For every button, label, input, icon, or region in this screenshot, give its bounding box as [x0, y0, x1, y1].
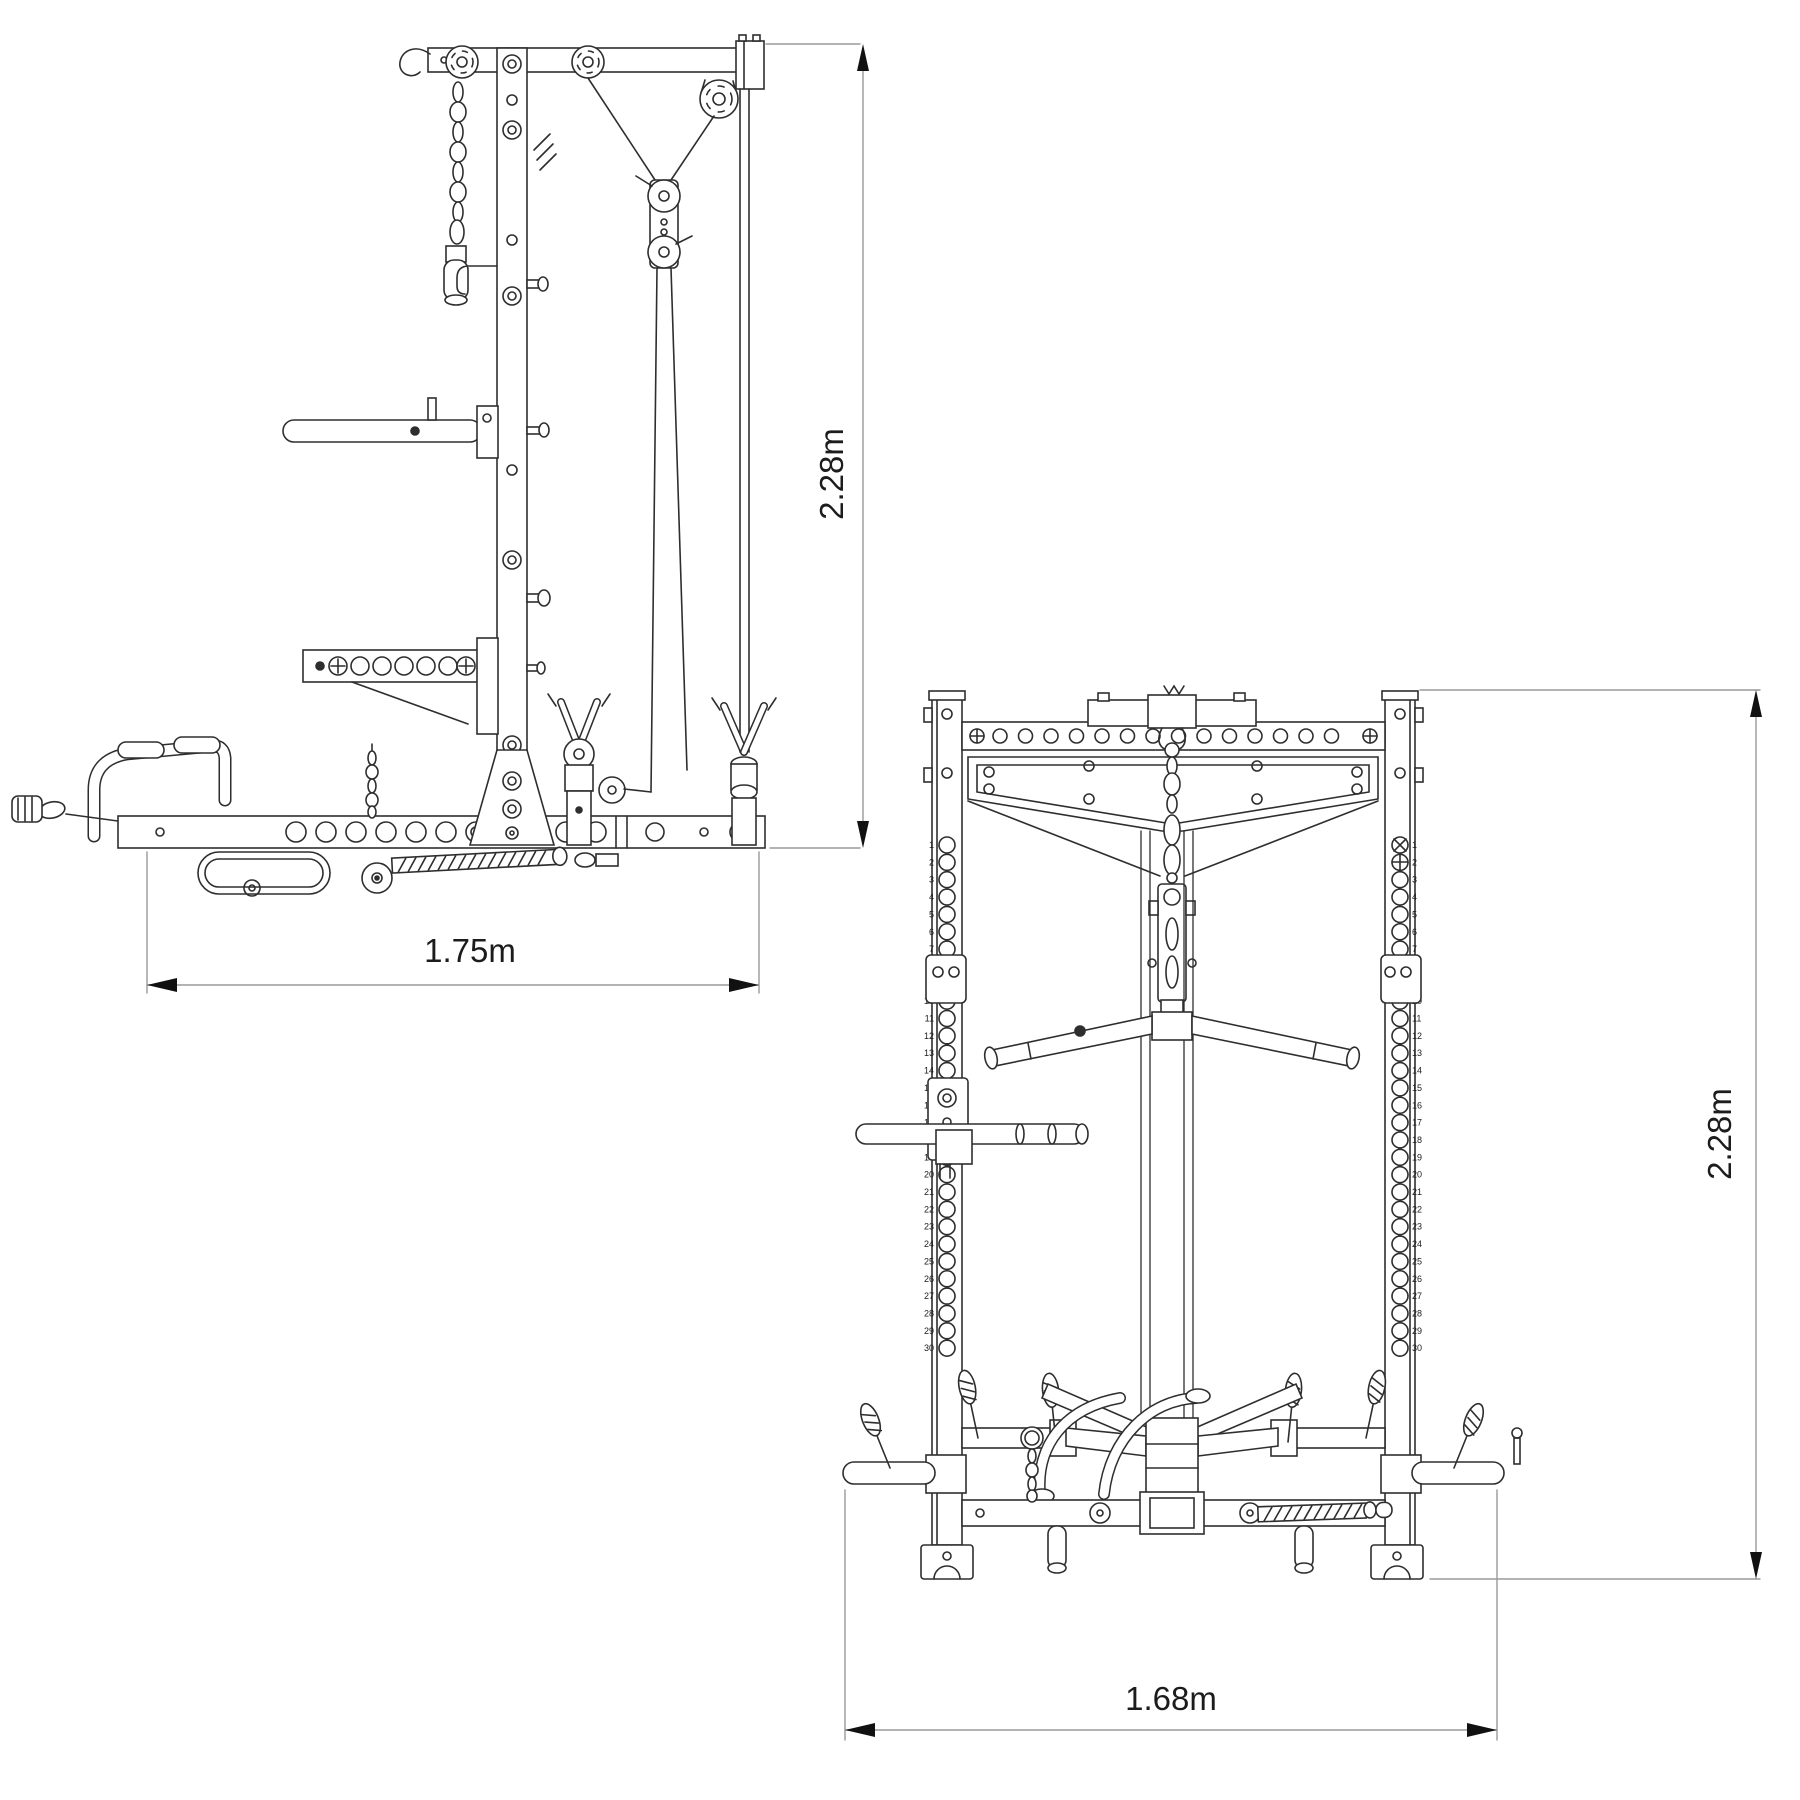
svg-text:20: 20: [924, 1170, 934, 1180]
svg-text:3: 3: [1412, 875, 1417, 885]
svg-text:22: 22: [1412, 1204, 1422, 1214]
svg-text:25: 25: [1412, 1256, 1422, 1266]
front-height-dimension-label: 2.28m: [1701, 1088, 1738, 1180]
svg-text:20: 20: [1412, 1170, 1422, 1180]
svg-text:3: 3: [929, 875, 934, 885]
svg-text:27: 27: [1412, 1291, 1422, 1301]
hatch-marks: [534, 134, 556, 170]
svg-text:19: 19: [1412, 1152, 1422, 1162]
svg-text:13: 13: [1412, 1048, 1422, 1058]
side-height-dimension-label: 2.28m: [813, 428, 850, 520]
j-cup-with-bar: [856, 1078, 1088, 1178]
svg-text:23: 23: [1412, 1222, 1422, 1232]
svg-text:18: 18: [1412, 1135, 1422, 1145]
technical-drawing-page: 2.28m 1.75m: [0, 0, 1800, 1800]
svg-text:24: 24: [924, 1239, 934, 1249]
svg-text:28: 28: [1412, 1308, 1422, 1318]
svg-text:23: 23: [924, 1222, 934, 1232]
svg-text:1: 1: [1412, 840, 1417, 850]
hanging-chain: [444, 82, 468, 305]
svg-text:21: 21: [1412, 1187, 1422, 1197]
base-feet: [921, 1545, 1423, 1579]
svg-text:7: 7: [929, 944, 934, 954]
svg-text:11: 11: [1412, 1014, 1421, 1024]
svg-text:17: 17: [1412, 1118, 1422, 1128]
front-width-dimension-label: 1.68m: [1125, 1680, 1217, 1717]
svg-text:26: 26: [1412, 1274, 1422, 1284]
svg-text:26: 26: [924, 1274, 934, 1284]
drawing-canvas: 2.28m 1.75m: [0, 0, 1800, 1800]
svg-text:30: 30: [924, 1343, 934, 1353]
svg-text:14: 14: [924, 1066, 934, 1076]
svg-text:25: 25: [924, 1256, 934, 1266]
svg-text:14: 14: [1412, 1066, 1422, 1076]
svg-text:12: 12: [924, 1031, 934, 1041]
svg-text:1: 1: [929, 840, 934, 850]
svg-text:7: 7: [1412, 944, 1417, 954]
side-view-drawing: [12, 35, 776, 896]
svg-text:2: 2: [1412, 857, 1417, 867]
svg-text:22: 22: [924, 1204, 934, 1214]
column-gusset: [470, 750, 554, 845]
svg-text:6: 6: [1412, 927, 1417, 937]
svg-text:21: 21: [924, 1187, 934, 1197]
svg-text:4: 4: [929, 892, 934, 902]
svg-text:27: 27: [924, 1291, 934, 1301]
side-width-dimension-label: 1.75m: [424, 932, 516, 969]
svg-text:4: 4: [1412, 892, 1417, 902]
svg-text:30: 30: [1412, 1343, 1422, 1353]
svg-text:15: 15: [1412, 1083, 1422, 1093]
svg-text:29: 29: [1412, 1326, 1422, 1336]
beam-hook: [400, 49, 430, 76]
double-pulley-carriage: [636, 176, 692, 268]
svg-text:11: 11: [925, 1014, 934, 1024]
svg-text:5: 5: [929, 909, 934, 919]
svg-text:6: 6: [929, 927, 934, 937]
svg-text:13: 13: [924, 1048, 934, 1058]
svg-text:24: 24: [1412, 1239, 1422, 1249]
front-view-drawing: 1122334455667788991010111112121313141415…: [843, 686, 1522, 1579]
front-view-dimensions: 2.28m 1.68m: [845, 690, 1762, 1740]
svg-text:2: 2: [929, 857, 934, 867]
svg-text:28: 28: [924, 1308, 934, 1318]
base-rail: [118, 816, 765, 848]
pulldown-bar: [983, 1012, 1361, 1070]
svg-text:16: 16: [1412, 1100, 1422, 1110]
svg-text:12: 12: [1412, 1031, 1422, 1041]
svg-text:29: 29: [924, 1326, 934, 1336]
svg-text:5: 5: [1412, 909, 1417, 919]
